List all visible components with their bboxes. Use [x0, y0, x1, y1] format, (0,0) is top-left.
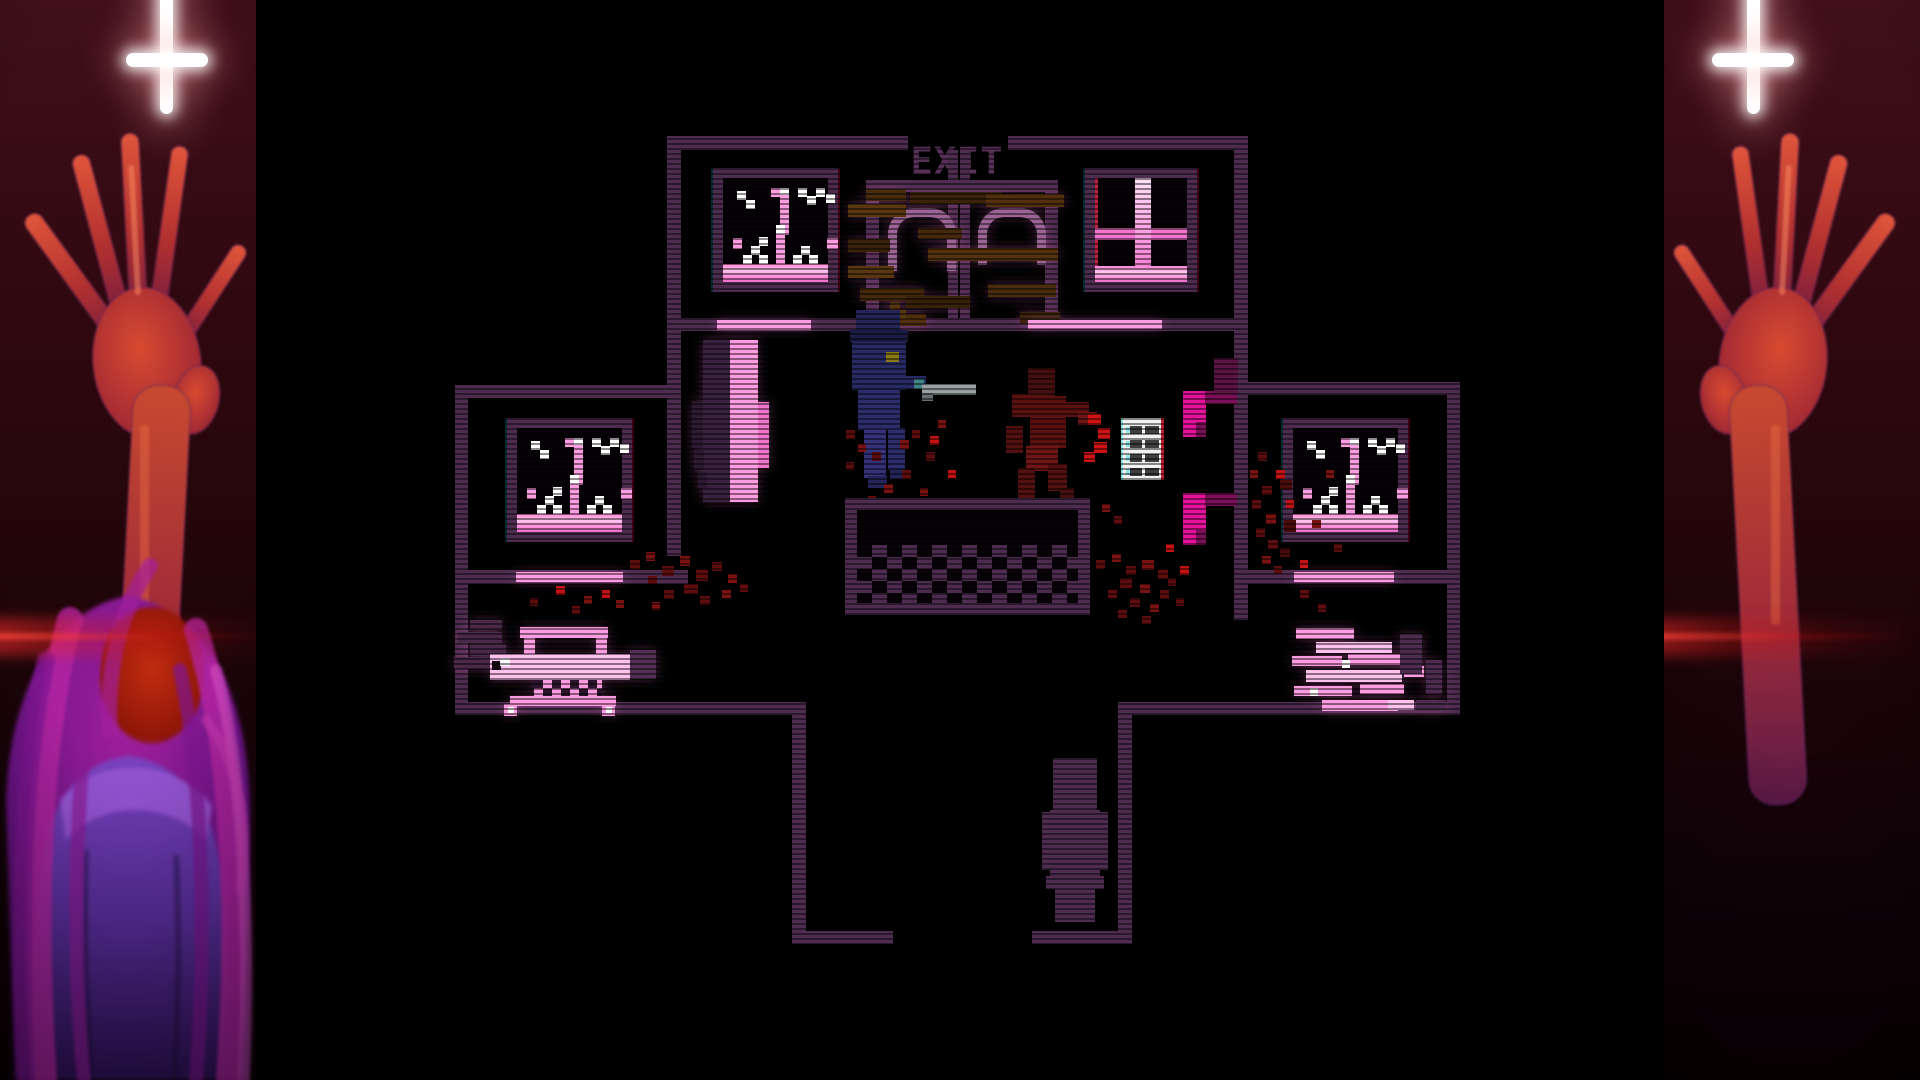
swing-door-leaf — [758, 446, 769, 468]
glass-shard — [1341, 438, 1350, 447]
glass-shard — [620, 444, 629, 453]
glass-shard — [1303, 488, 1312, 499]
blood-pixel — [1108, 590, 1117, 598]
wall-segment — [1118, 702, 1132, 944]
glass-shard — [827, 238, 838, 249]
corpse-pixel — [1018, 468, 1035, 499]
corridor-door-part — [1099, 812, 1108, 870]
glass-shard — [527, 488, 536, 499]
glass-shard — [1307, 441, 1316, 450]
gurney-part — [520, 627, 608, 638]
glass-shard — [776, 225, 785, 234]
wall-segment — [1008, 136, 1248, 150]
glass-shard — [601, 446, 610, 455]
blood-pixel — [858, 444, 866, 452]
blood-pixel — [1262, 556, 1271, 564]
blood-pixel — [1180, 566, 1189, 575]
blood-pixel — [1112, 554, 1121, 562]
corpse-pixel — [1084, 452, 1095, 462]
glass-shard — [595, 496, 604, 505]
wreck-part — [1388, 700, 1414, 710]
corpse-pixel — [1028, 368, 1055, 397]
blood-pixel — [1168, 578, 1176, 586]
blood-pixel — [1142, 616, 1151, 624]
cross-window — [1085, 168, 1197, 292]
window-sill — [1293, 514, 1398, 532]
blood-pixel — [846, 430, 855, 439]
glass-shard — [759, 255, 768, 264]
glass-shard — [737, 191, 746, 200]
player-pixel — [850, 330, 908, 342]
blood-pixel — [900, 440, 909, 449]
wood-plank — [848, 204, 906, 217]
swing-door-leaf — [698, 472, 707, 488]
glass-shard — [610, 438, 619, 447]
paper-note — [1121, 418, 1164, 480]
corpse-pixel — [1060, 488, 1074, 498]
wreck-part — [1316, 642, 1392, 653]
glass-shard — [809, 255, 818, 264]
player-pixel — [886, 352, 899, 362]
player-pixel — [888, 428, 905, 470]
gurney-part — [510, 696, 616, 706]
note-line — [1145, 468, 1159, 476]
glass-shard — [1396, 444, 1405, 453]
doorway-light-strip — [1294, 572, 1394, 582]
glass-shard — [743, 255, 752, 264]
glass-shard — [1368, 438, 1377, 447]
swing-door-leaf — [758, 402, 769, 448]
blood-pixel — [1268, 540, 1278, 549]
blood-pixel — [912, 430, 920, 438]
glass-shard — [553, 505, 562, 514]
blood-pixel — [1142, 560, 1154, 570]
player-pixel — [858, 390, 900, 430]
doorway-light-strip — [1028, 320, 1162, 329]
glass-shard — [1313, 505, 1322, 514]
blood-pixel — [930, 436, 939, 445]
glass-shard — [1386, 438, 1395, 447]
corpse-pixel — [1088, 414, 1101, 425]
blood-pixel — [556, 586, 565, 595]
blood-pixel — [646, 552, 655, 561]
blood-pixel — [616, 600, 624, 608]
glass-shard — [759, 237, 768, 246]
glass-shard — [1316, 450, 1325, 459]
glass-shard — [621, 488, 632, 499]
reception-desk — [845, 498, 1090, 615]
blood-pixel — [1158, 570, 1168, 579]
note-line — [1130, 440, 1142, 448]
wood-plank — [918, 228, 962, 239]
note-line — [1126, 469, 1130, 475]
blood-pixel — [1276, 470, 1285, 479]
blood-pixel — [938, 420, 946, 428]
blood-pixel — [728, 574, 737, 583]
wreck-part — [1296, 628, 1354, 639]
glass-shard — [1329, 505, 1338, 514]
wall-segment — [866, 180, 879, 330]
blood-pixel — [740, 584, 748, 592]
blood-pixel — [584, 596, 592, 604]
blood-pixel — [684, 584, 698, 594]
wall-segment — [1032, 931, 1132, 944]
corridor-door-part — [1055, 889, 1095, 922]
glass-shard — [826, 194, 835, 203]
blood-pixel — [1166, 544, 1174, 552]
wall-seat — [1196, 422, 1206, 437]
wood-plank — [906, 296, 970, 308]
corridor-door-part — [1042, 812, 1051, 870]
blood-pixel — [664, 590, 674, 599]
wood-plank — [848, 266, 894, 278]
wall-segment — [667, 136, 681, 556]
wall-segment — [455, 385, 681, 398]
game-viewport[interactable]: EXIT — [256, 0, 1664, 1080]
glass-shard — [1397, 488, 1408, 499]
glass-shard — [801, 246, 810, 255]
blood-pixel — [1140, 584, 1150, 593]
blood-pixel — [1280, 548, 1290, 557]
glass-shard — [793, 255, 802, 264]
glass-shard — [1379, 505, 1388, 514]
wall-segment — [667, 136, 908, 150]
blood-pixel — [1252, 500, 1261, 509]
blood-pixel — [1256, 528, 1265, 537]
note-line — [1130, 454, 1142, 462]
broken-window — [1283, 418, 1408, 542]
wreck-part — [1342, 660, 1350, 668]
note-line — [1145, 426, 1159, 434]
player-pixel — [922, 393, 933, 401]
wood-plank — [988, 284, 1056, 297]
gurney-part — [500, 658, 510, 666]
window-sill — [517, 514, 622, 532]
corpse-pixel — [1030, 396, 1066, 448]
glass-shard — [565, 438, 574, 447]
glass-shard — [751, 246, 760, 255]
glass-shard — [771, 188, 780, 197]
blood-pixel — [1266, 514, 1276, 524]
gurney-part — [458, 632, 502, 643]
wall-seat — [1196, 530, 1206, 545]
corridor-door-part — [1050, 810, 1100, 876]
wreck-part — [1306, 670, 1402, 682]
corridor-door-part — [1053, 758, 1097, 810]
swing-door-leaf — [694, 450, 704, 470]
wall-segment — [1248, 382, 1460, 395]
blood-pixel — [872, 452, 881, 461]
blood-pixel — [712, 562, 722, 571]
corridor-door-part — [1046, 876, 1104, 889]
blood-pixel — [1334, 544, 1342, 552]
blood-pixel — [1274, 566, 1282, 574]
wood-plank — [928, 248, 1058, 261]
broken-window — [713, 168, 838, 292]
note-line — [1145, 440, 1159, 448]
note-line — [1145, 454, 1159, 462]
blood-pixel — [920, 488, 928, 496]
blood-pixel — [722, 590, 731, 598]
swing-door-leaf — [730, 340, 758, 502]
blood-pixel — [1114, 516, 1122, 524]
glass-shard — [746, 200, 755, 209]
wreck-part — [1310, 688, 1318, 696]
glass-shard — [587, 505, 596, 514]
blood-pixel — [884, 484, 893, 493]
swing-door-leaf — [692, 402, 703, 448]
blood-pixel — [662, 566, 674, 576]
glass-shard — [733, 238, 742, 249]
blood-pixel — [1312, 520, 1321, 528]
wreck-part — [1426, 660, 1442, 694]
wood-plank — [848, 239, 890, 252]
blood-pixel — [846, 462, 854, 470]
blood-pixel — [1262, 486, 1272, 495]
wreck-part — [1294, 686, 1352, 696]
blood-pixel — [1300, 590, 1309, 598]
floorplan: EXIT — [0, 0, 1920, 1080]
blood-pixel — [648, 576, 657, 584]
blood-pixel — [1126, 566, 1136, 575]
blood-pixel — [1096, 560, 1105, 569]
glass-shard — [1321, 496, 1330, 505]
wreck-part — [1360, 684, 1404, 694]
wreck-part — [1348, 654, 1400, 665]
blood-pixel — [1176, 598, 1184, 606]
glass-shard — [816, 188, 825, 197]
glass-shard — [553, 487, 562, 496]
blood-pixel — [1102, 504, 1110, 512]
blood-pixel — [1118, 610, 1127, 618]
window-sill — [723, 264, 828, 282]
gurney-part — [524, 638, 535, 655]
wreck-part — [1400, 634, 1422, 674]
blood-pixel — [948, 470, 956, 478]
blood-pixel — [572, 606, 580, 614]
glass-shard — [1329, 487, 1338, 496]
glass-shard — [1363, 505, 1372, 514]
glass-shard — [570, 475, 579, 484]
blood-pixel — [530, 598, 538, 606]
note-line — [1126, 441, 1130, 447]
blood-pixel — [1284, 520, 1296, 532]
blood-pixel — [696, 570, 708, 581]
blood-pixel — [1286, 500, 1294, 508]
screen: EXIT — [0, 0, 1920, 1080]
corpse-pixel — [1006, 426, 1023, 453]
glass-shard — [545, 496, 554, 505]
glass-shard — [1377, 446, 1386, 455]
note-line — [1130, 468, 1142, 476]
blood-pixel — [680, 556, 690, 566]
note-line — [1126, 455, 1130, 461]
gurney-part — [596, 638, 607, 655]
wood-plank — [866, 189, 906, 201]
gurney-part — [508, 707, 514, 713]
glass-shard — [540, 450, 549, 459]
wreck-part — [1416, 700, 1446, 711]
blood-pixel — [1326, 470, 1334, 478]
window-sill — [1095, 266, 1187, 282]
blood-pixel — [700, 596, 710, 605]
blood-pixel — [1130, 598, 1140, 607]
wall-segment — [1447, 382, 1460, 715]
gurney-part — [470, 620, 502, 630]
wreck-part — [1292, 656, 1342, 666]
note-line — [1130, 426, 1142, 434]
corpse-pixel — [1094, 442, 1107, 453]
blood-pixel — [1250, 470, 1258, 478]
wall-segment — [792, 931, 893, 944]
glass-shard — [592, 438, 601, 447]
blood-pixel — [1300, 560, 1308, 568]
glass-shard — [1371, 496, 1380, 505]
glass-shard — [531, 441, 540, 450]
wood-plank — [986, 194, 1064, 207]
broken-window — [507, 418, 632, 542]
glass-shard — [603, 505, 612, 514]
wreck-part — [1322, 700, 1398, 711]
wall-segment — [792, 702, 806, 944]
doorway-arch — [888, 208, 956, 271]
corpse-pixel — [1048, 464, 1067, 491]
gurney-part — [606, 707, 612, 713]
desk-checker-front — [857, 545, 1078, 603]
gurney-legs — [534, 680, 602, 697]
blood-pixel — [1258, 452, 1267, 461]
glass-shard — [798, 188, 807, 197]
note-line — [1126, 427, 1130, 433]
gurney-part — [630, 650, 656, 679]
blood-pixel — [1280, 480, 1292, 490]
blood-pixel — [630, 560, 640, 569]
blood-pixel — [1318, 604, 1326, 612]
doorway-light-strip — [516, 572, 623, 582]
glass-shard — [537, 505, 546, 514]
blood-pixel — [1150, 604, 1159, 612]
blood-pixel — [1160, 590, 1169, 599]
corpse-pixel — [1098, 428, 1110, 439]
blood-pixel — [1120, 578, 1132, 588]
blood-pixel — [652, 602, 660, 610]
glass-shard — [1346, 475, 1355, 484]
gurney-part — [490, 654, 630, 680]
glass-shard — [807, 196, 816, 205]
wall-seat — [1205, 493, 1237, 506]
blood-pixel — [926, 452, 935, 461]
swing-door-leaf — [703, 340, 730, 502]
doorway-light-strip — [717, 320, 811, 330]
wall-seat — [1214, 358, 1238, 394]
blood-pixel — [902, 470, 911, 479]
blood-pixel — [602, 590, 610, 598]
